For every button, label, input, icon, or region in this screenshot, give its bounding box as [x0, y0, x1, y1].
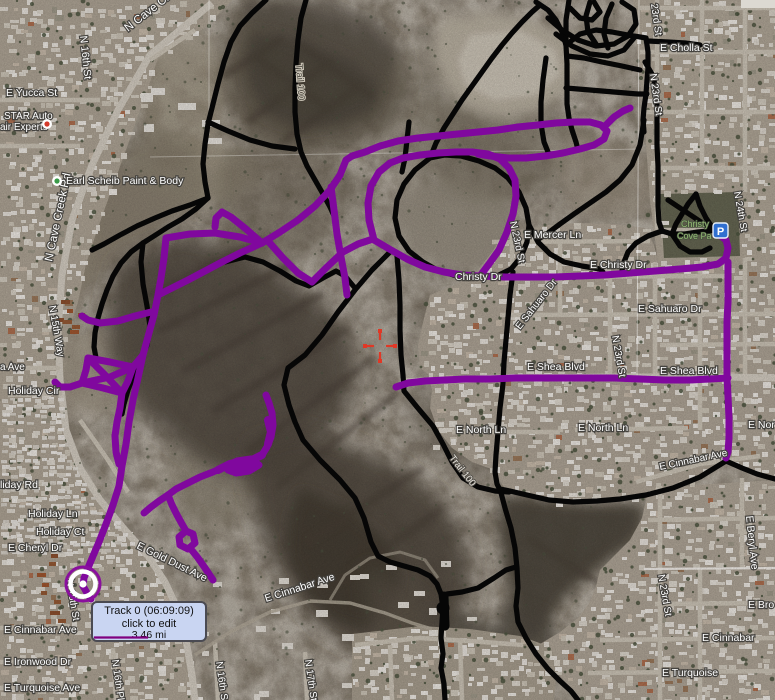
- svg-text:air Experts: air Experts: [0, 122, 48, 133]
- svg-text:E North Ln: E North Ln: [456, 424, 506, 436]
- svg-text:Christy Dr: Christy Dr: [455, 271, 502, 283]
- svg-text:E Cholla St: E Cholla St: [660, 42, 713, 54]
- svg-text:E Shea Blvd: E Shea Blvd: [527, 361, 585, 373]
- svg-text:E Bro: E Bro: [748, 599, 774, 611]
- svg-text:Track 0 (06:09:09): Track 0 (06:09:09): [104, 605, 193, 617]
- svg-text:E North Ln: E North Ln: [578, 422, 628, 434]
- svg-text:E Nor: E Nor: [748, 419, 775, 431]
- svg-text:liday Rd: liday Rd: [0, 479, 38, 491]
- svg-text:Holiday Ln: Holiday Ln: [28, 508, 78, 520]
- svg-text:P: P: [717, 226, 724, 238]
- svg-text:E Cinnabar Ave: E Cinnabar Ave: [4, 624, 77, 636]
- svg-text:E Sahuaro Dr: E Sahuaro Dr: [638, 303, 702, 315]
- svg-text:Holiday Cir: Holiday Cir: [8, 385, 60, 397]
- svg-text:Earl Scheib Paint & Body: Earl Scheib Paint & Body: [66, 175, 184, 187]
- svg-text:E Shea Blvd: E Shea Blvd: [660, 365, 718, 377]
- svg-text:E Mercer Ln: E Mercer Ln: [524, 229, 581, 241]
- svg-text:E Cheryl Dr: E Cheryl Dr: [8, 542, 63, 554]
- svg-text:a Ave: a Ave: [0, 362, 25, 373]
- svg-text:E Cinnabar: E Cinnabar: [702, 632, 755, 644]
- svg-text:E Christy Dr: E Christy Dr: [590, 259, 647, 271]
- svg-text:Holiday Ct: Holiday Ct: [36, 526, 85, 538]
- svg-text:E Yucca St: E Yucca St: [6, 87, 57, 99]
- svg-text:3.46 mi: 3.46 mi: [132, 629, 166, 641]
- svg-text:Christy: Christy: [681, 219, 710, 229]
- svg-text:E Turquoise: E Turquoise: [662, 667, 718, 679]
- svg-text:Cove Pa: Cove Pa: [677, 231, 712, 241]
- svg-text:E Turquoise Ave: E Turquoise Ave: [4, 682, 80, 694]
- svg-text:E Ironwood Dr: E Ironwood Dr: [4, 656, 72, 668]
